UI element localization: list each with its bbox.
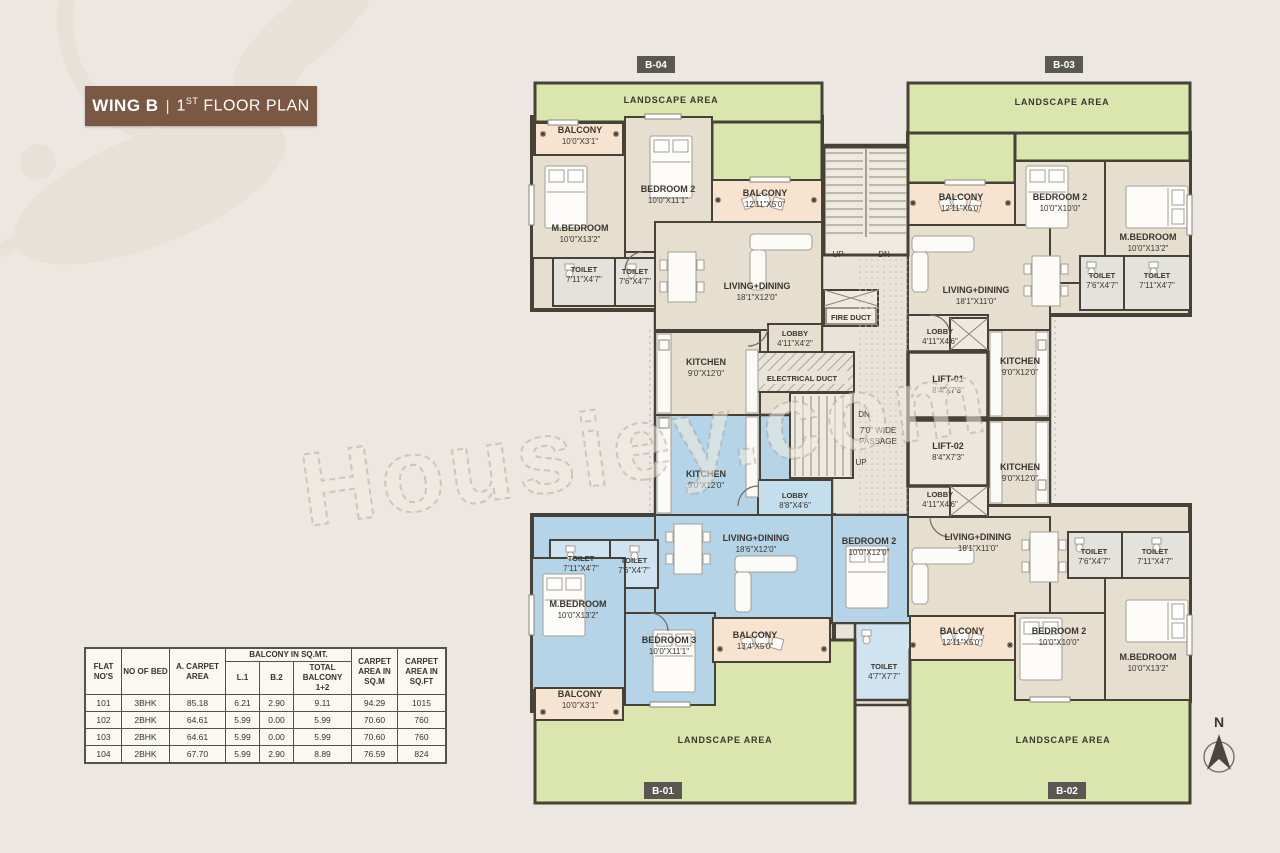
table-row: 1032BHK64.615.990.005.9970.60760	[86, 729, 446, 746]
cell: 5.99	[226, 746, 260, 763]
cell: 5.99	[294, 729, 352, 746]
col-header-carpet: A. CARPET AREA	[170, 649, 226, 695]
room-label: BEDROOM 2	[842, 536, 897, 546]
room-dims: 12'11"X5'0"	[941, 204, 981, 213]
cell: 0.00	[260, 729, 294, 746]
fire-duct-label: FIRE DUCT	[831, 313, 871, 322]
unit-badge-label: B-03	[1053, 60, 1075, 71]
cell: 6.21	[226, 695, 260, 712]
room-label: LIVING+DINING	[724, 281, 791, 291]
page-title: WING B | 1ST FLOOR PLAN	[85, 86, 317, 126]
col-group-balcony: BALCONY IN SQ.MT.	[226, 649, 352, 662]
room-label: BALCONY	[743, 188, 788, 198]
cell: 2BHK	[122, 746, 170, 763]
room-label: TOILET	[1081, 547, 1108, 556]
cell: 70.60	[352, 712, 398, 729]
room-dims: 4'7"X7'7"	[868, 672, 900, 681]
room-label: M.BEDROOM	[1120, 232, 1177, 242]
cell: 5.99	[226, 712, 260, 729]
room-label: KITCHEN	[1000, 462, 1040, 472]
room-label: TOILET	[871, 662, 898, 671]
stair-direction-label: UP	[832, 250, 843, 259]
title-floor-rest: FLOOR PLAN	[198, 98, 309, 115]
room-label: LIVING+DINING	[723, 533, 790, 543]
cell: 103	[86, 729, 122, 746]
room-dims: 7'6"X4'7"	[1078, 557, 1110, 566]
room-dims: 7'11"X4'7"	[1137, 557, 1173, 566]
floor-plan-page: { "title": {"wing": "WING B", "sep": "|"…	[0, 0, 1280, 853]
room-dims: 18'1"X11'0"	[956, 297, 996, 306]
room-label: LOBBY	[927, 490, 953, 499]
col-header-total: TOTAL BALCONY 1+2	[294, 662, 352, 695]
room-dims: 9'0"X12'0"	[1002, 368, 1038, 377]
unit-badge-label: B-04	[645, 60, 667, 71]
compass-north-label: N	[1214, 714, 1224, 730]
room-dims: 9'0"X12'0"	[1002, 474, 1038, 483]
cell: 760	[398, 729, 446, 746]
unit-badge-label: B-02	[1056, 786, 1078, 797]
cell: 9.11	[294, 695, 352, 712]
col-header-l1: L.1	[226, 662, 260, 695]
room-label: TOILET	[571, 265, 598, 274]
room-dims: 7'6"X4'7"	[618, 566, 650, 575]
cell: 64.61	[170, 712, 226, 729]
room-dims: 7'6"X4'7"	[619, 277, 651, 286]
room-dims: 13'4"X5'0"	[737, 642, 773, 651]
col-header-sqm: CARPET AREA IN SQ.M	[352, 649, 398, 695]
room-label: LIVING+DINING	[943, 285, 1010, 295]
cell: 8.89	[294, 746, 352, 763]
room-label: BEDROOM 2	[1033, 192, 1088, 202]
cell: 94.29	[352, 695, 398, 712]
room-dims: 7'11"X4'7"	[566, 275, 602, 284]
room-label: TOILET	[1142, 547, 1169, 556]
room-dims: 10'0"X11'1"	[648, 196, 688, 205]
room-dims: 10'0"X13'2"	[1128, 664, 1169, 673]
room-label: TOILET	[568, 554, 595, 563]
room-dims: 8'8"X4'6"	[779, 501, 811, 510]
room-dims: 18'1"X11'0"	[958, 544, 998, 553]
room-dims: 18'6"X12'0"	[736, 545, 777, 554]
room-dims: 10'0"X11'1"	[649, 647, 689, 656]
cell: 0.00	[260, 712, 294, 729]
room-label: M.BEDROOM	[1120, 652, 1177, 662]
cell: 67.70	[170, 746, 226, 763]
cell: 1015	[398, 695, 446, 712]
room-dims: 18'1"X12'0"	[737, 293, 778, 302]
col-header-flat: FLAT NO'S	[86, 649, 122, 695]
room-label: M.BEDROOM	[550, 599, 607, 609]
room-dims: 10'0"X3'1"	[562, 701, 598, 710]
room-label: BEDROOM 3	[642, 635, 697, 645]
cell: 3BHK	[122, 695, 170, 712]
table-row: 1042BHK67.705.992.908.8976.59824	[86, 746, 446, 763]
cell: 2BHK	[122, 712, 170, 729]
room-label: TOILET	[1144, 271, 1171, 280]
room-label: BALCONY	[558, 689, 603, 699]
room-label: BEDROOM 2	[1032, 626, 1087, 636]
title-floor-num: 1	[176, 98, 185, 115]
room-label: BEDROOM 2	[641, 184, 696, 194]
room-label: KITCHEN	[686, 357, 726, 367]
area-table: FLAT NO'S NO OF BED A. CARPET AREA BALCO…	[85, 648, 446, 763]
room-label: BALCONY	[939, 192, 984, 202]
cell: 102	[86, 712, 122, 729]
room-dims: 7'11"X4'7"	[1139, 281, 1175, 290]
cell: 2.90	[260, 746, 294, 763]
room-label: LANDSCAPE AREA	[624, 95, 719, 105]
room-label: LOBBY	[782, 329, 808, 338]
room-dims: 7'11"X4'7"	[563, 564, 599, 573]
cell: 824	[398, 746, 446, 763]
stair-direction-label: DN	[878, 250, 890, 259]
room-label: LANDSCAPE AREA	[1016, 735, 1111, 745]
room-label: LANDSCAPE AREA	[1015, 97, 1110, 107]
title-separator: |	[166, 98, 170, 115]
room-label: BALCONY	[558, 125, 603, 135]
room-dims: 12'11"X5'0"	[942, 638, 982, 647]
cell: 76.59	[352, 746, 398, 763]
room-dims: 10'0"X3'1"	[562, 137, 598, 146]
table-row: 1013BHK85.186.212.909.1194.291015	[86, 695, 446, 712]
cell: 5.99	[226, 729, 260, 746]
room-dims: 10'0"X10'0"	[1040, 204, 1081, 213]
room-label: TOILET	[1089, 271, 1116, 280]
room-dims: 10'0"X12'0"	[849, 548, 890, 557]
room-label: BALCONY	[733, 630, 778, 640]
room-label: LOBBY	[927, 327, 953, 336]
room-dims: 12'11"X5'0"	[745, 200, 785, 209]
room-dims: 4'11"X4'6"	[922, 500, 958, 509]
room-dims: 10'0"X13'2"	[1128, 244, 1169, 253]
col-header-bed: NO OF BED	[122, 649, 170, 695]
col-header-b2: B.2	[260, 662, 294, 695]
unit-badge-label: B-01	[652, 786, 674, 797]
room-label: LOBBY	[782, 491, 808, 500]
title-wing: WING B	[92, 96, 158, 116]
cell: 85.18	[170, 695, 226, 712]
cell: 70.60	[352, 729, 398, 746]
room-label: BALCONY	[940, 626, 985, 636]
title-floor-sup: ST	[186, 96, 199, 106]
cell: 5.99	[294, 712, 352, 729]
col-header-sqft: CARPET AREA IN SQ.FT	[398, 649, 446, 695]
cell: 2.90	[260, 695, 294, 712]
room-dims: 4'11"X4'2"	[777, 339, 813, 348]
cell: 64.61	[170, 729, 226, 746]
room-dims: 7'6"X4'7"	[1086, 281, 1118, 290]
cell: 104	[86, 746, 122, 763]
table-row: 1022BHK64.615.990.005.9970.60760	[86, 712, 446, 729]
room-label: LIVING+DINING	[945, 532, 1012, 542]
room-label: TOILET	[621, 556, 648, 565]
cell: 2BHK	[122, 729, 170, 746]
room-label: TOILET	[622, 267, 649, 276]
room-label: KITCHEN	[1000, 356, 1040, 366]
cell: 101	[86, 695, 122, 712]
room-label: M.BEDROOM	[552, 223, 609, 233]
room-dims: 10'0"X13'2"	[558, 611, 599, 620]
room-label: LANDSCAPE AREA	[678, 735, 773, 745]
cell: 760	[398, 712, 446, 729]
title-floor: 1ST FLOOR PLAN	[176, 96, 309, 115]
room-dims: 10'0"X10'0"	[1039, 638, 1080, 647]
room-dims: 10'0"X13'2"	[560, 235, 601, 244]
